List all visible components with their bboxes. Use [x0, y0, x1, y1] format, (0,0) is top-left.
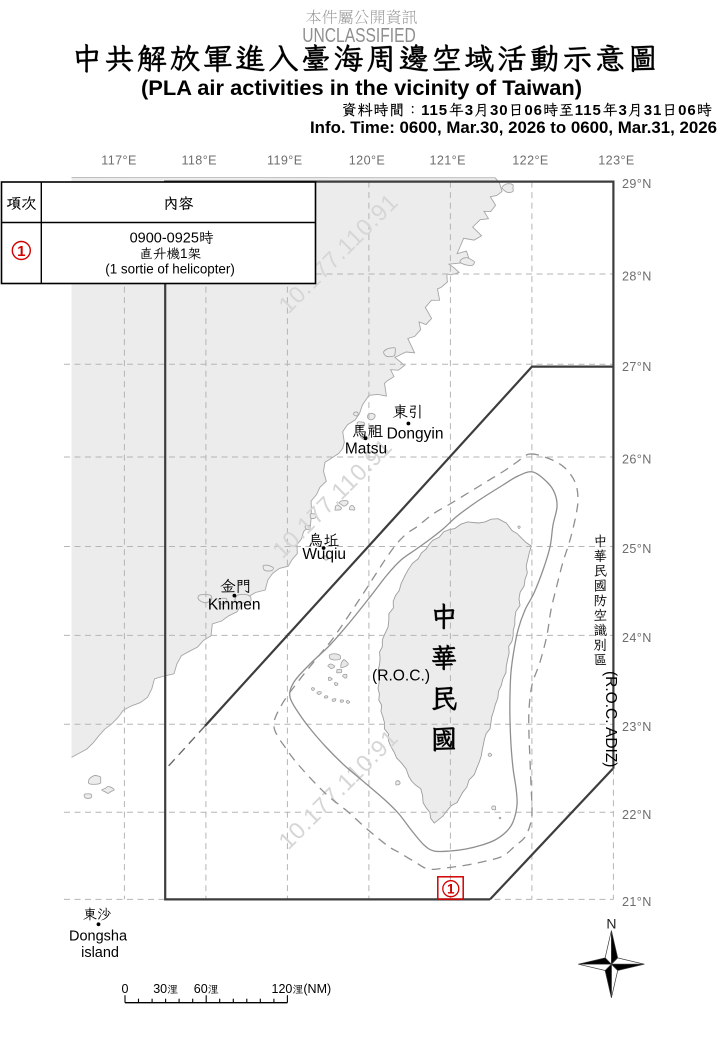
svg-text:1: 1	[17, 243, 25, 260]
svg-text:(1 sortie of helicopter): (1 sortie of helicopter)	[105, 262, 235, 277]
svg-text:0: 0	[122, 982, 129, 996]
svg-text:60: 60	[194, 982, 208, 996]
svg-text:118°E: 118°E	[181, 153, 217, 167]
svg-text:Kinmen: Kinmen	[208, 597, 261, 614]
svg-text:Info. Time: 0600, Mar.30, 2026: Info. Time: 0600, Mar.30, 2026 to 0600, …	[310, 118, 717, 137]
svg-text:117°E: 117°E	[101, 153, 137, 167]
svg-text:115: 115	[421, 102, 448, 119]
svg-text:Matsu: Matsu	[345, 441, 387, 458]
svg-text:115: 115	[575, 102, 602, 119]
svg-text:Dongsha: Dongsha	[69, 929, 128, 945]
svg-text:31: 31	[644, 102, 663, 119]
svg-text:21°N: 21°N	[622, 895, 652, 909]
svg-text:122°E: 122°E	[512, 153, 548, 167]
svg-text:120: 120	[272, 982, 293, 996]
svg-text:28°N: 28°N	[622, 270, 652, 284]
svg-text:30: 30	[153, 982, 167, 996]
svg-text:30: 30	[490, 102, 509, 119]
svg-text:22°N: 22°N	[622, 808, 652, 822]
svg-text:Dongyin: Dongyin	[387, 426, 444, 443]
svg-text:29°N: 29°N	[622, 177, 652, 191]
svg-text:1: 1	[447, 882, 455, 897]
svg-text:(NM): (NM)	[303, 982, 331, 996]
svg-text:23°N: 23°N	[622, 720, 652, 734]
svg-text:25°N: 25°N	[622, 542, 652, 556]
svg-text:120°E: 120°E	[349, 153, 385, 167]
svg-text:0900-0925: 0900-0925	[130, 231, 199, 247]
svg-text:121°E: 121°E	[429, 153, 465, 167]
svg-text:119°E: 119°E	[267, 153, 303, 167]
svg-text:24°N: 24°N	[622, 631, 652, 645]
svg-text:(PLA air activities in the vic: (PLA air activities in the vicinity of T…	[141, 77, 582, 100]
svg-text:3: 3	[619, 102, 628, 119]
svg-text:(R.O.C.): (R.O.C.)	[372, 668, 430, 685]
svg-text:26°N: 26°N	[622, 453, 652, 467]
svg-text:3: 3	[465, 102, 474, 119]
svg-text:1: 1	[180, 246, 188, 261]
svg-text:27°N: 27°N	[622, 360, 652, 374]
svg-text:06: 06	[524, 102, 543, 119]
svg-text:N: N	[606, 916, 616, 932]
svg-text:island: island	[81, 945, 119, 961]
svg-text:(R.O.C. ADIZ): (R.O.C. ADIZ)	[602, 671, 619, 767]
svg-text:UNCLASSIFIED: UNCLASSIFIED	[302, 25, 416, 47]
svg-text:123°E: 123°E	[598, 153, 634, 167]
svg-text:06: 06	[678, 102, 697, 119]
